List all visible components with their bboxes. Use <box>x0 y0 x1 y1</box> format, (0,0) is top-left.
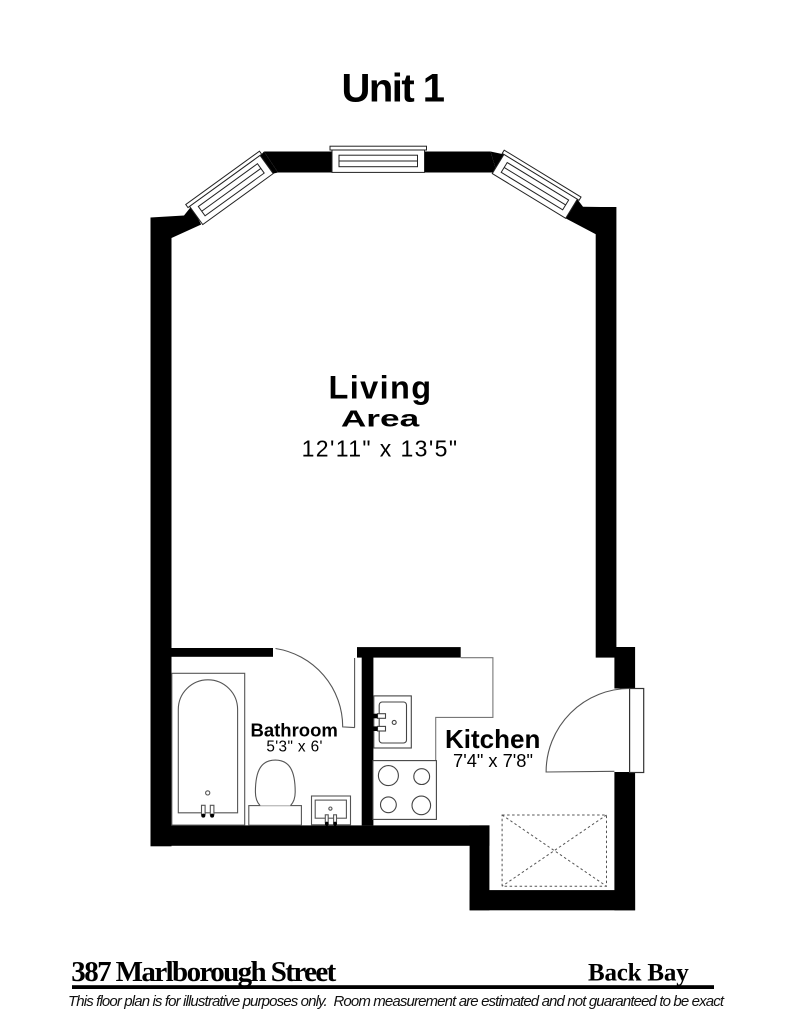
svg-text:This floor plan is for illustr: This floor plan is for illustrative purp… <box>68 993 725 1010</box>
svg-text:387 Marlborough Street: 387 Marlborough Street <box>71 956 336 988</box>
svg-text:12'11" x 13'5": 12'11" x 13'5" <box>302 436 459 462</box>
svg-text:Area: Area <box>341 406 420 432</box>
svg-text:5'3" x 6': 5'3" x 6' <box>266 739 323 756</box>
svg-text:Living: Living <box>328 370 432 406</box>
svg-text:Unit 1: Unit 1 <box>341 67 444 111</box>
svg-text:Bathroom: Bathroom <box>251 720 338 741</box>
svg-text:7'4" x 7'8": 7'4" x 7'8" <box>453 750 533 771</box>
svg-text:Back Bay: Back Bay <box>588 960 689 987</box>
